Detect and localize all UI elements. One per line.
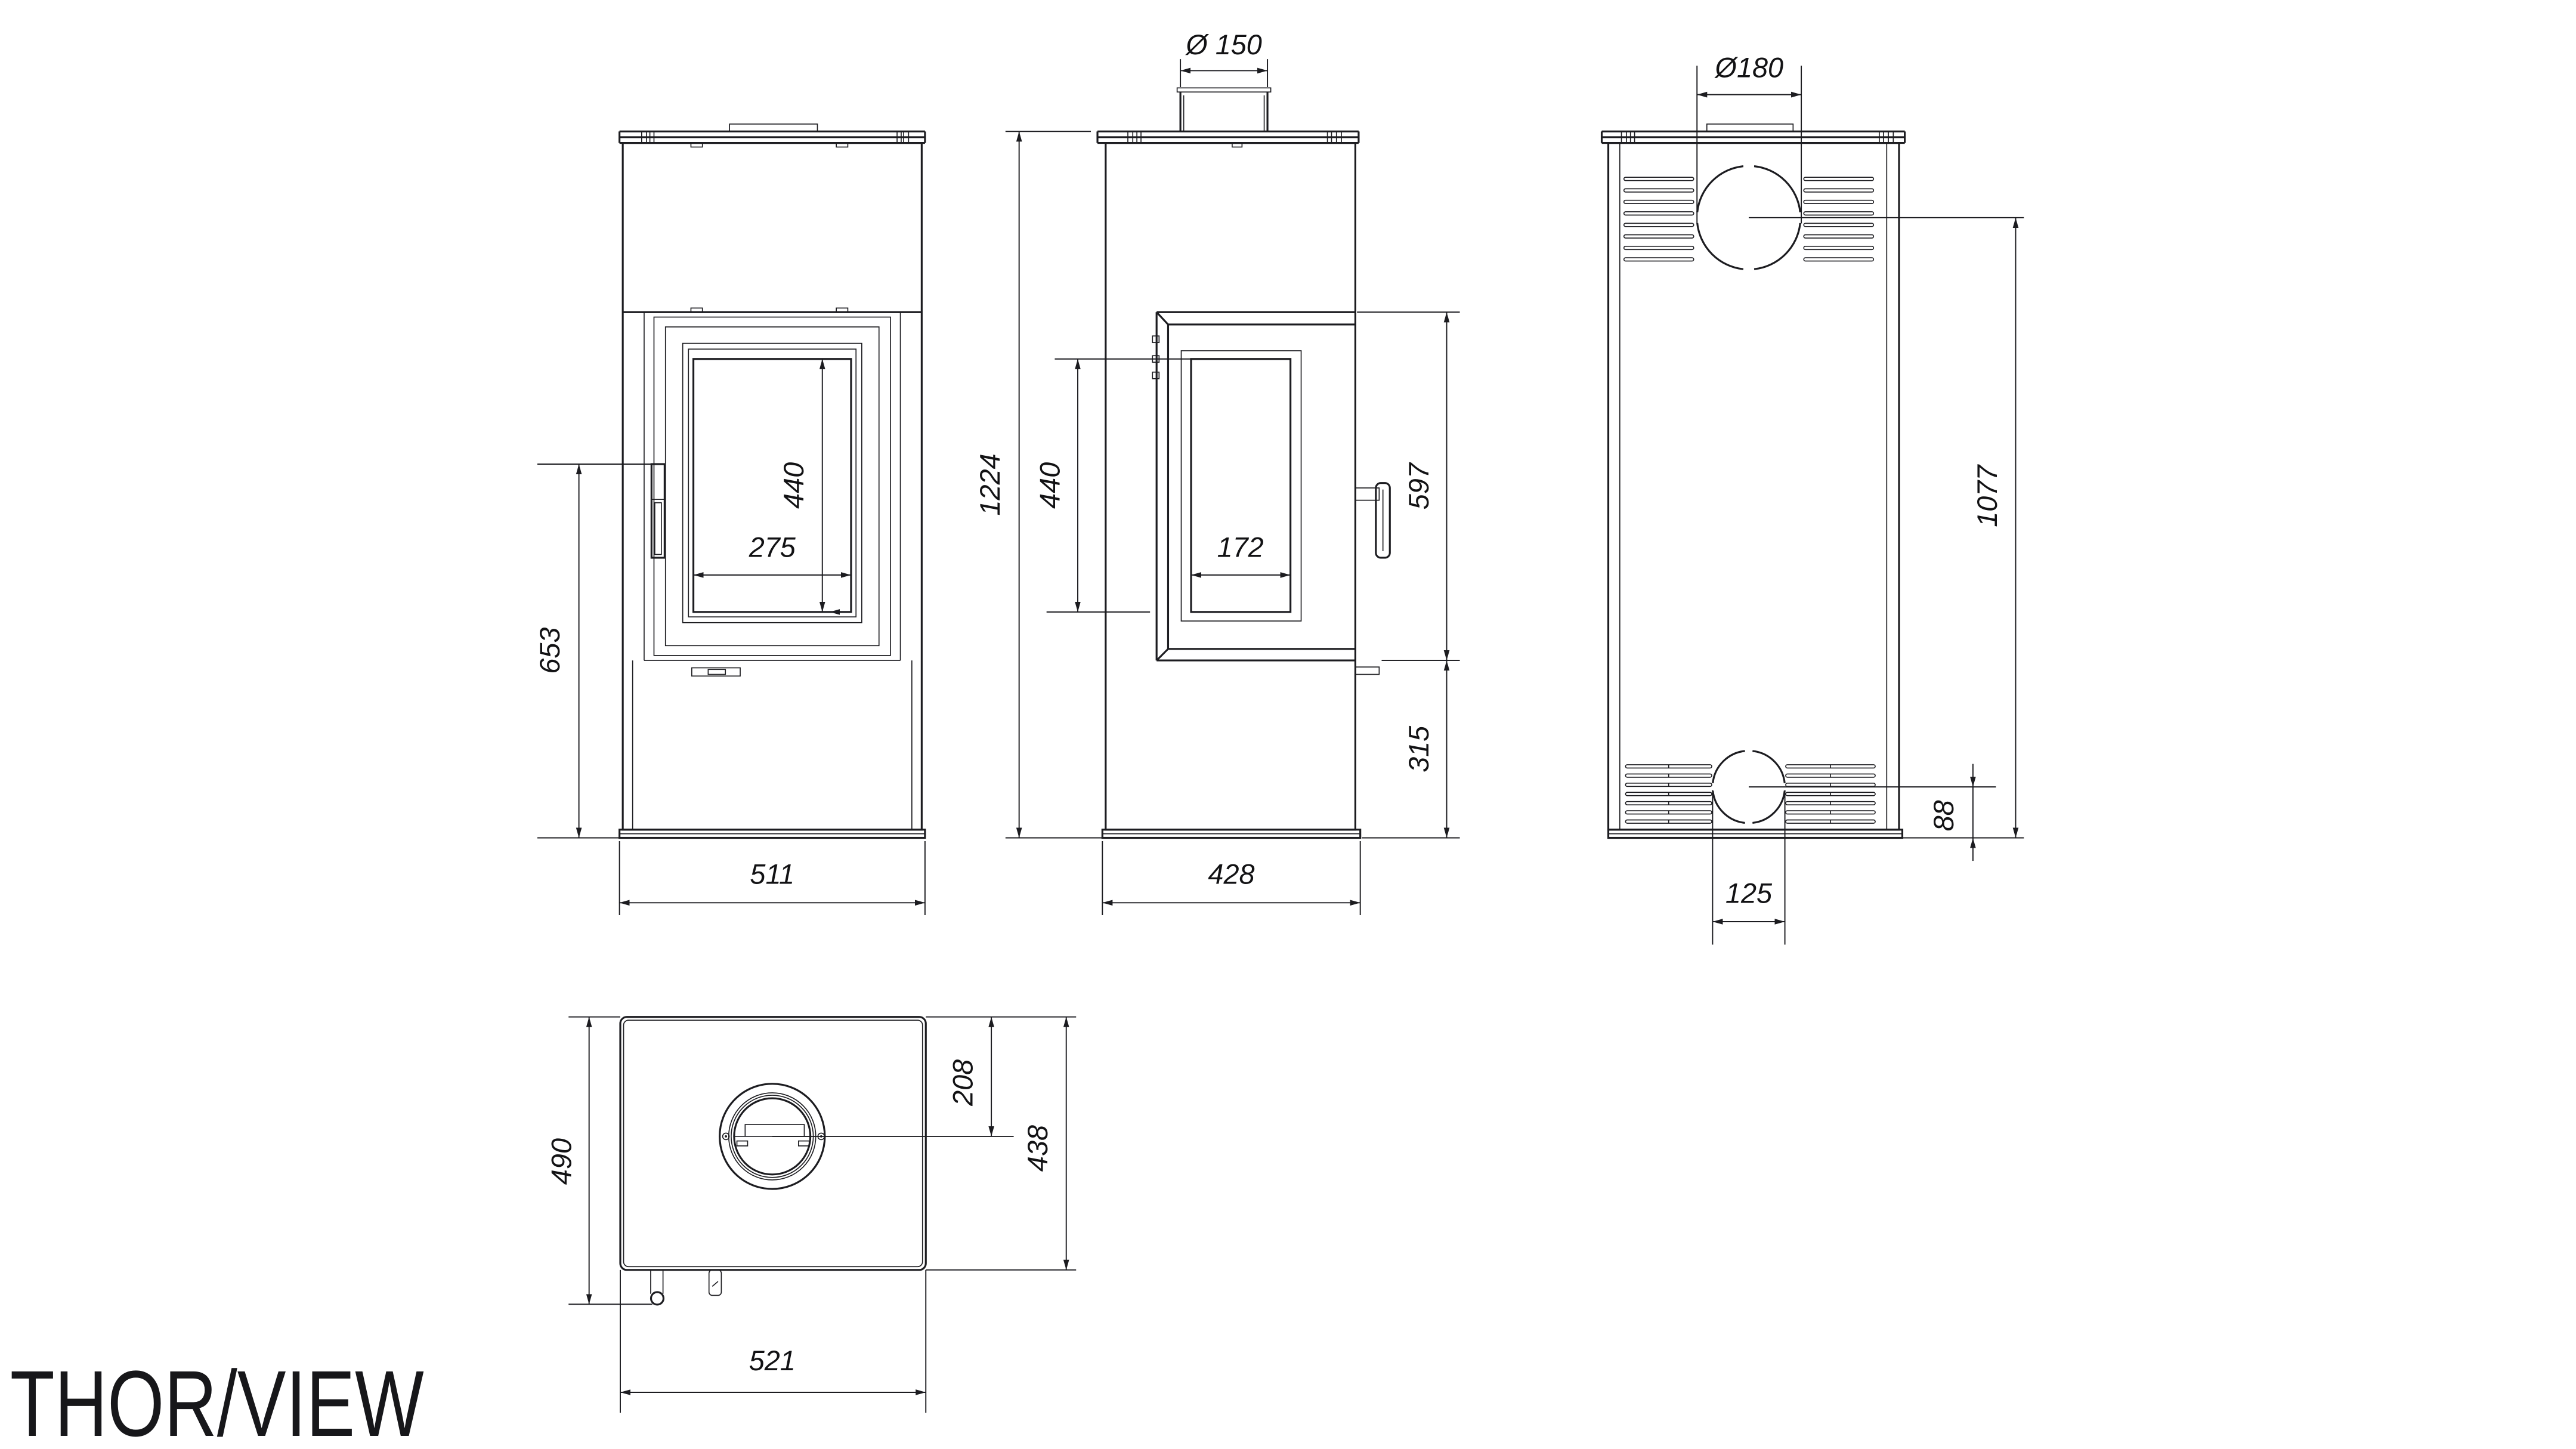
dim-flue-top-label: Ø 150 <box>1185 29 1261 60</box>
dim-125-label: 125 <box>1725 878 1773 909</box>
upper-vent-slats <box>1624 177 1874 261</box>
front-view-dimensions: 653 275 440 511 <box>534 359 925 915</box>
drawing-page: 653 275 440 511 <box>0 0 2576 1449</box>
dim-490-label: 490 <box>546 1138 577 1185</box>
product-title-label: THOR/VIEW <box>10 1351 424 1449</box>
top-view-outline <box>620 1017 926 1305</box>
top-view: 490 208 438 521 <box>546 1017 1076 1413</box>
front-view-outline <box>620 124 925 838</box>
dim-428-label: 428 <box>1208 859 1254 890</box>
dim-88-label: 88 <box>1928 800 1959 831</box>
dim-653-label: 653 <box>534 628 565 674</box>
dim-511-label: 511 <box>750 859 794 890</box>
product-title: THOR/VIEW <box>10 1351 424 1449</box>
back-view: Ø180 1077 88 125 <box>1602 52 2024 944</box>
lower-vent-slats <box>1625 765 1875 823</box>
top-view-dimensions: 490 208 438 521 <box>546 1017 1076 1413</box>
dim-172-label: 172 <box>1217 532 1264 563</box>
dim-521-label: 521 <box>749 1345 796 1376</box>
dim-208-label: 208 <box>948 1059 979 1107</box>
dim-flue-back-label: Ø180 <box>1714 52 1783 83</box>
back-view-outline <box>1602 124 1905 838</box>
side-view-outline <box>1097 88 1390 838</box>
front-view: 653 275 440 511 <box>534 124 925 915</box>
dim-275-label: 275 <box>749 532 796 563</box>
dim-440-side-label: 440 <box>1035 462 1066 509</box>
dim-597-label: 597 <box>1403 462 1434 509</box>
technical-drawing: 653 275 440 511 <box>0 0 2576 1449</box>
dim-438-label: 438 <box>1022 1125 1053 1172</box>
side-view-dimensions: Ø 150 1224 440 172 597 315 428 <box>975 29 1459 915</box>
side-view: Ø 150 1224 440 172 597 315 428 <box>975 29 1459 915</box>
dim-315-label: 315 <box>1403 725 1434 773</box>
dim-440-front-label: 440 <box>778 462 809 509</box>
dim-1224-label: 1224 <box>975 453 1006 515</box>
dim-1077-label: 1077 <box>1972 464 2003 527</box>
